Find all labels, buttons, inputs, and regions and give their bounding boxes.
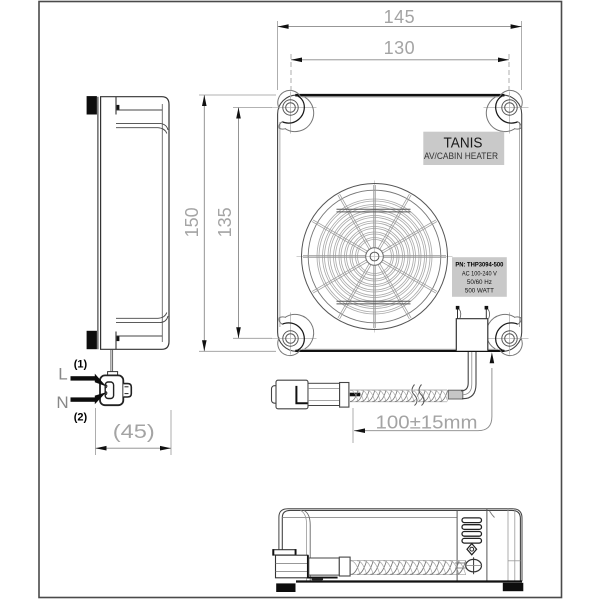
svg-text:(2): (2) [74, 412, 88, 424]
svg-text:145: 145 [384, 7, 416, 27]
svg-text:100±15mm: 100±15mm [376, 412, 478, 432]
svg-text:150: 150 [182, 207, 202, 237]
svg-text:PN: THP3094-500: PN: THP3094-500 [455, 262, 503, 269]
svg-text:50/60 Hz: 50/60 Hz [467, 279, 493, 286]
svg-text:(45): (45) [113, 422, 155, 443]
svg-text:130: 130 [384, 38, 416, 58]
svg-text:L: L [58, 365, 67, 384]
svg-text:AC 100-240 V: AC 100-240 V [462, 270, 497, 277]
svg-text:500 WATT: 500 WATT [465, 288, 494, 295]
svg-text:N: N [56, 393, 68, 412]
svg-text:135: 135 [215, 207, 235, 237]
svg-text:(1): (1) [74, 359, 88, 371]
svg-text:TANIS: TANIS [444, 136, 483, 152]
svg-text:AV/CABIN HEATER: AV/CABIN HEATER [424, 151, 498, 161]
